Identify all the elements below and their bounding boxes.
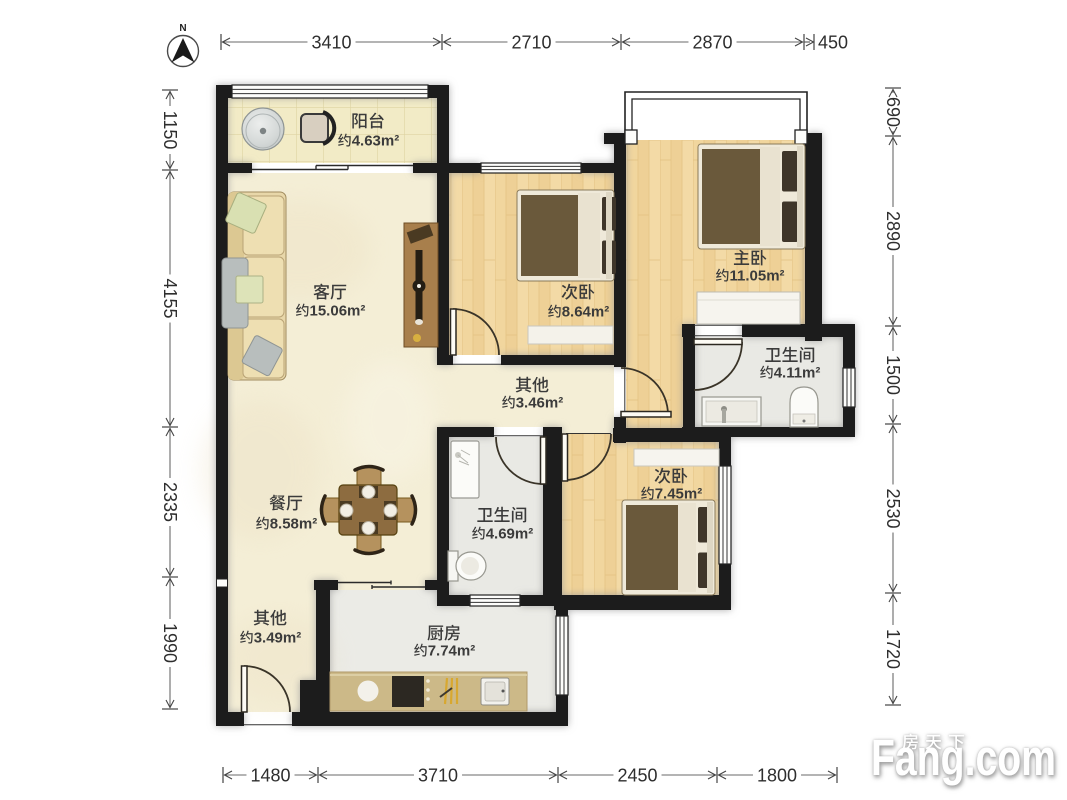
svg-text:4.63m²: 4.63m² [352, 132, 400, 149]
svg-text:690: 690 [883, 97, 903, 127]
svg-text:2710: 2710 [511, 32, 551, 52]
svg-text:8.64m²: 8.64m² [562, 303, 610, 320]
svg-text:1480: 1480 [250, 765, 290, 785]
svg-text:3.49m²: 3.49m² [254, 629, 302, 646]
svg-text:11.05m²: 11.05m² [730, 267, 785, 284]
svg-text:3410: 3410 [311, 32, 351, 52]
svg-text:2890: 2890 [883, 211, 903, 251]
svg-text:2450: 2450 [617, 765, 657, 785]
svg-text:450: 450 [818, 33, 848, 53]
svg-text:4.11m²: 4.11m² [774, 364, 821, 381]
svg-text:Fang.com: Fang.com [871, 729, 1056, 786]
svg-text:1990: 1990 [160, 623, 180, 663]
svg-text:4.69m²: 4.69m² [486, 525, 534, 542]
svg-text:8.58m²: 8.58m² [270, 515, 318, 532]
svg-text:4155: 4155 [160, 278, 180, 318]
svg-text:1500: 1500 [883, 355, 903, 395]
svg-text:2870: 2870 [692, 32, 732, 52]
svg-text:15.06m²: 15.06m² [310, 302, 366, 319]
svg-text:7.74m²: 7.74m² [428, 642, 476, 659]
svg-text:3710: 3710 [418, 765, 458, 785]
svg-text:1150: 1150 [160, 111, 180, 150]
svg-text:N: N [179, 23, 186, 34]
svg-text:1800: 1800 [757, 765, 797, 785]
svg-text:2335: 2335 [160, 482, 180, 522]
svg-text:3.46m²: 3.46m² [516, 394, 564, 411]
svg-text:7.45m²: 7.45m² [655, 485, 703, 502]
svg-text:1720: 1720 [883, 629, 903, 669]
svg-text:2530: 2530 [883, 488, 903, 528]
